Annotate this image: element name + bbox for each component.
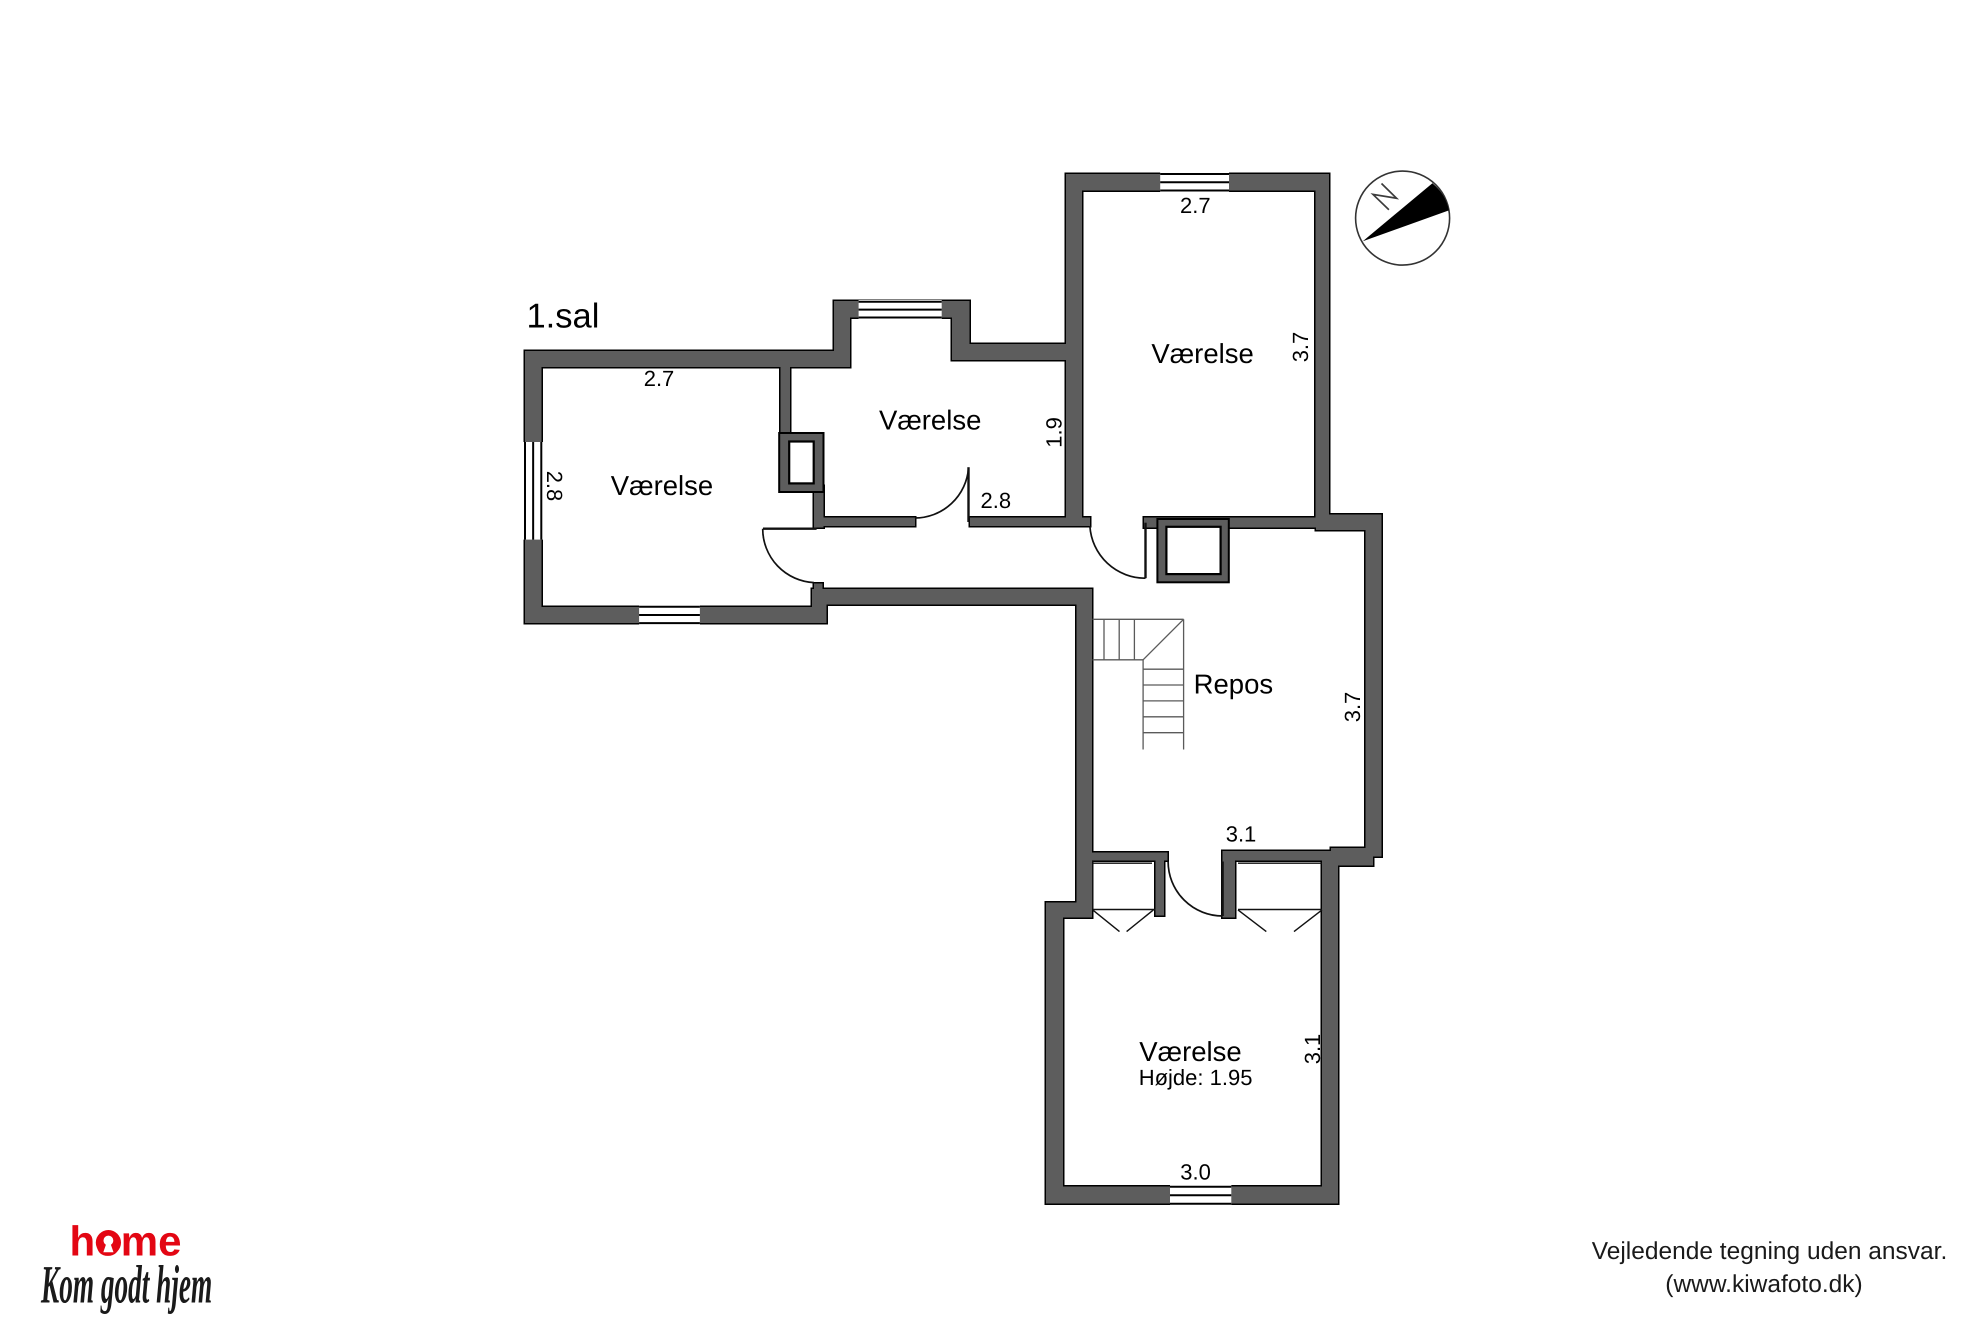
svg-text:Kom godt hjem: Kom godt hjem: [40, 1255, 212, 1315]
svg-text:Højde: 1.95: Højde: 1.95: [1139, 1065, 1253, 1090]
svg-text:2.8: 2.8: [542, 471, 567, 502]
svg-text:Vejledende tegning uden ansvar: Vejledende tegning uden ansvar.: [1592, 1238, 1948, 1265]
svg-text:Værelse: Værelse: [879, 405, 981, 436]
svg-text:1.sal: 1.sal: [527, 297, 600, 335]
svg-text:Værelse: Værelse: [1139, 1036, 1241, 1067]
svg-text:Repos: Repos: [1194, 669, 1274, 700]
svg-text:3.7: 3.7: [1340, 692, 1365, 723]
svg-text:Værelse: Værelse: [1151, 338, 1253, 369]
svg-text:1.9: 1.9: [1041, 417, 1066, 448]
svg-text:2.7: 2.7: [1180, 193, 1211, 218]
svg-text:3.1: 3.1: [1226, 821, 1257, 846]
svg-text:3.1: 3.1: [1300, 1034, 1325, 1065]
svg-text:3.7: 3.7: [1288, 332, 1313, 363]
svg-text:Værelse: Værelse: [611, 470, 713, 501]
svg-text:2.8: 2.8: [981, 488, 1012, 513]
svg-text:2.7: 2.7: [644, 366, 675, 391]
svg-text:(www.kiwafoto.dk): (www.kiwafoto.dk): [1665, 1271, 1862, 1298]
svg-text:3.0: 3.0: [1180, 1160, 1211, 1185]
